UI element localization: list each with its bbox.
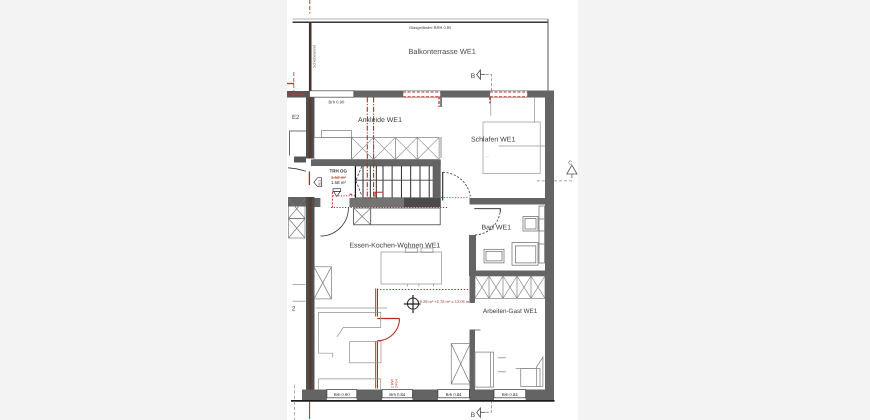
- svg-text:TRH OG: TRH OG: [330, 169, 348, 174]
- svg-text:Brh 0.90: Brh 0.90: [334, 392, 351, 397]
- svg-text:Bad WE1: Bad WE1: [482, 224, 512, 232]
- svg-text:Essen-Kochen-Wohnen WE1: Essen-Kochen-Wohnen WE1: [349, 242, 440, 250]
- svg-text:E2: E2: [292, 114, 300, 121]
- svg-text:W12: W12: [318, 179, 322, 186]
- svg-text:Glasgeländer BRH 0.90: Glasgeländer BRH 0.90: [409, 25, 452, 30]
- svg-text:B: B: [471, 412, 476, 419]
- svg-text:Arbeiten-Gast WE1: Arbeiten-Gast WE1: [483, 308, 538, 315]
- svg-text:Brh 0.84: Brh 0.84: [502, 392, 519, 397]
- svg-text:Schiebewand: Schiebewand: [312, 45, 316, 68]
- svg-text:B: B: [471, 73, 476, 80]
- svg-text:Schlafen WE1: Schlafen WE1: [471, 136, 515, 144]
- svg-text:Brh 0.84: Brh 0.84: [446, 392, 463, 397]
- svg-text:2: 2: [292, 306, 296, 313]
- svg-text:..: ..: [486, 153, 489, 159]
- svg-text:24/14: 24/14: [395, 379, 399, 388]
- svg-text:Balkonterrasse WE1: Balkonterrasse WE1: [409, 47, 476, 56]
- svg-text:1.58 m²: 1.58 m²: [331, 180, 346, 185]
- svg-text:Brh 0.84: Brh 0.84: [389, 392, 406, 397]
- svg-text:Ankleide WE1: Ankleide WE1: [358, 116, 402, 124]
- svg-text:Brh 0.90: Brh 0.90: [329, 100, 346, 105]
- svg-text:+9.29 m² +2.76 m² = 12.05 m²: +9.29 m² +2.76 m² = 12.05 m²: [417, 299, 471, 304]
